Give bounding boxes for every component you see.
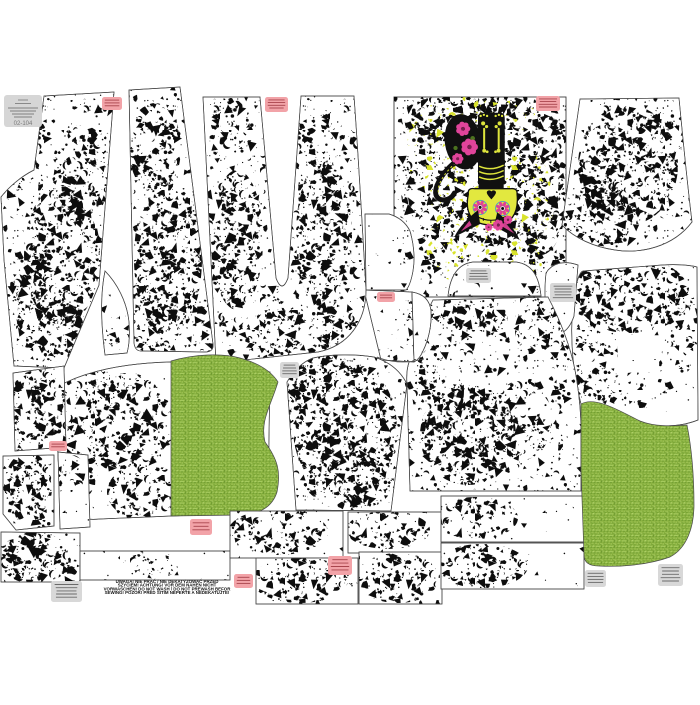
- svg-text:SEWING! POZOR! PŘED ŠITÍM NEPE: SEWING! POZOR! PŘED ŠITÍM NEPERTE A NEDE…: [105, 590, 230, 595]
- svg-text:02-104: 02-104: [14, 121, 33, 127]
